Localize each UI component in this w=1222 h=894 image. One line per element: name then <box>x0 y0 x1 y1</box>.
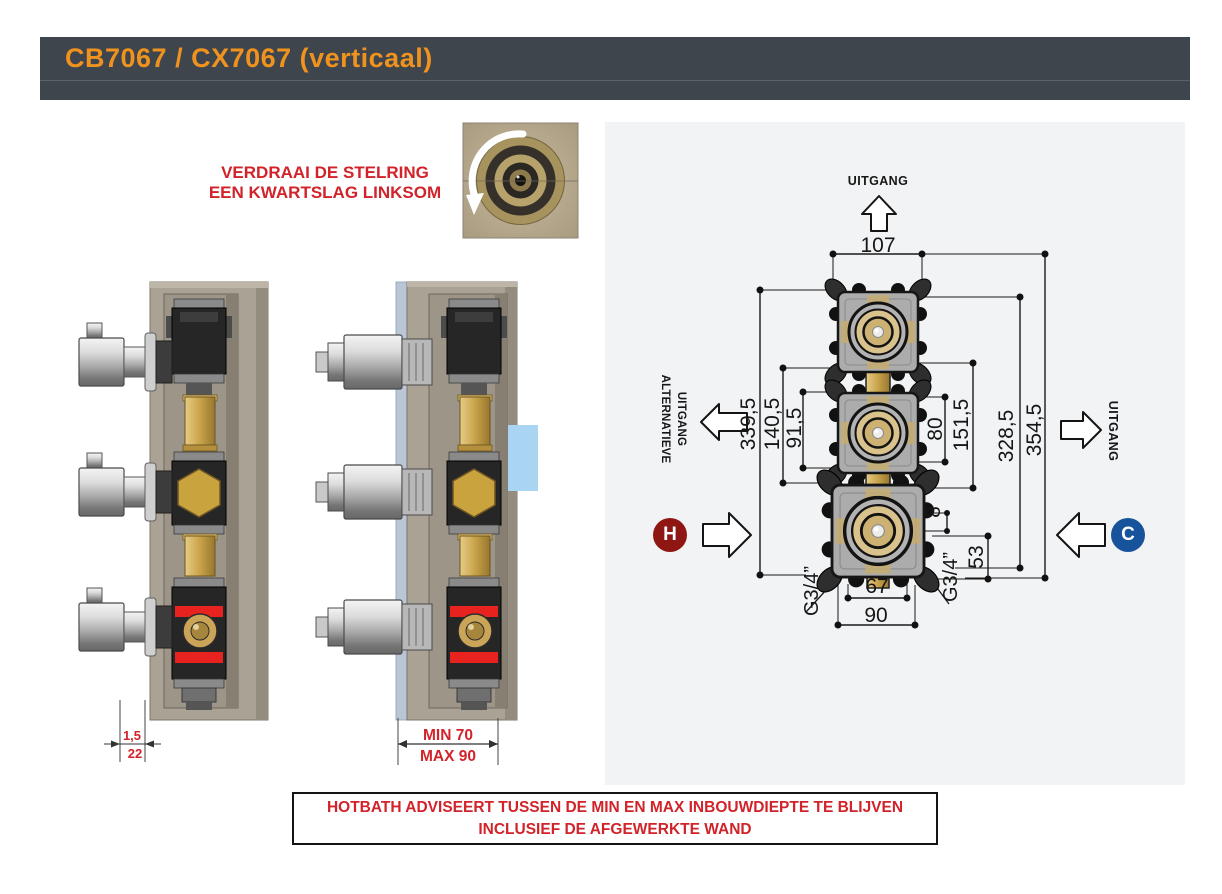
advisory-box: HOTBATH ADVISEERT TUSSEN DE MIN EN MAX I… <box>292 792 938 845</box>
valve-unit-middle <box>821 376 935 490</box>
dim-91-5: 91,5 <box>783 378 807 478</box>
instruction-text: VERDRAAI DE STELRING EEN KWARTSLAG LINKS… <box>205 163 445 203</box>
handle-middle-recessed <box>316 465 432 519</box>
dim-53: 53 <box>965 507 989 607</box>
dim-depth-max: MAX 90 <box>393 748 503 766</box>
dim-328-5: 328,5 <box>995 386 1019 486</box>
dim-thread-left: G3/4” <box>800 541 824 641</box>
outlet-top-label: UITGANG <box>818 174 938 188</box>
dim-107: 107 <box>828 234 928 258</box>
side-view-recessed <box>316 282 538 765</box>
handle-bottom-recessed <box>316 600 432 654</box>
dim-thread-right: G3/4” <box>939 527 963 627</box>
dim-140-5: 140,5 <box>761 374 785 474</box>
dim-wall-thickness: 22 <box>105 746 165 761</box>
valve-unit-top <box>821 275 935 389</box>
dim-354-5: 354,5 <box>1023 380 1047 480</box>
dim-151-5: 151,5 <box>950 375 974 475</box>
cold-badge: C <box>1111 518 1145 552</box>
dim-plate-thickness: 1,5 <box>102 728 162 743</box>
dim-90: 90 <box>826 604 926 628</box>
dim-339-5: 339,5 <box>737 374 761 474</box>
side-view-surface <box>79 282 268 762</box>
alt-outlet-label-line1: ALTERNATIEVE <box>659 359 671 479</box>
hot-badge: H <box>653 518 687 552</box>
instruction-line2: EEN KWARTSLAG LINKSOM <box>205 183 445 203</box>
advisory-line1: HOTBATH ADVISEERT TUSSEN DE MIN EN MAX I… <box>294 797 936 819</box>
advisory-line2: INCLUSIEF DE AFGEWERKTE WAND <box>294 819 936 841</box>
stelring-image <box>463 123 578 238</box>
dim-depth-min: MIN 70 <box>393 727 503 745</box>
page: CB7067 / CX7067 (verticaal) <box>0 0 1222 894</box>
instruction-line1: VERDRAAI DE STELRING <box>205 163 445 183</box>
dim-67: 67 <box>827 575 927 599</box>
handle-top-recessed <box>316 335 432 389</box>
outlet-right-label: UITGANG <box>1106 371 1120 491</box>
alt-outlet-label-line2: UITGANG <box>675 359 687 479</box>
stelring-highlight <box>508 425 538 491</box>
